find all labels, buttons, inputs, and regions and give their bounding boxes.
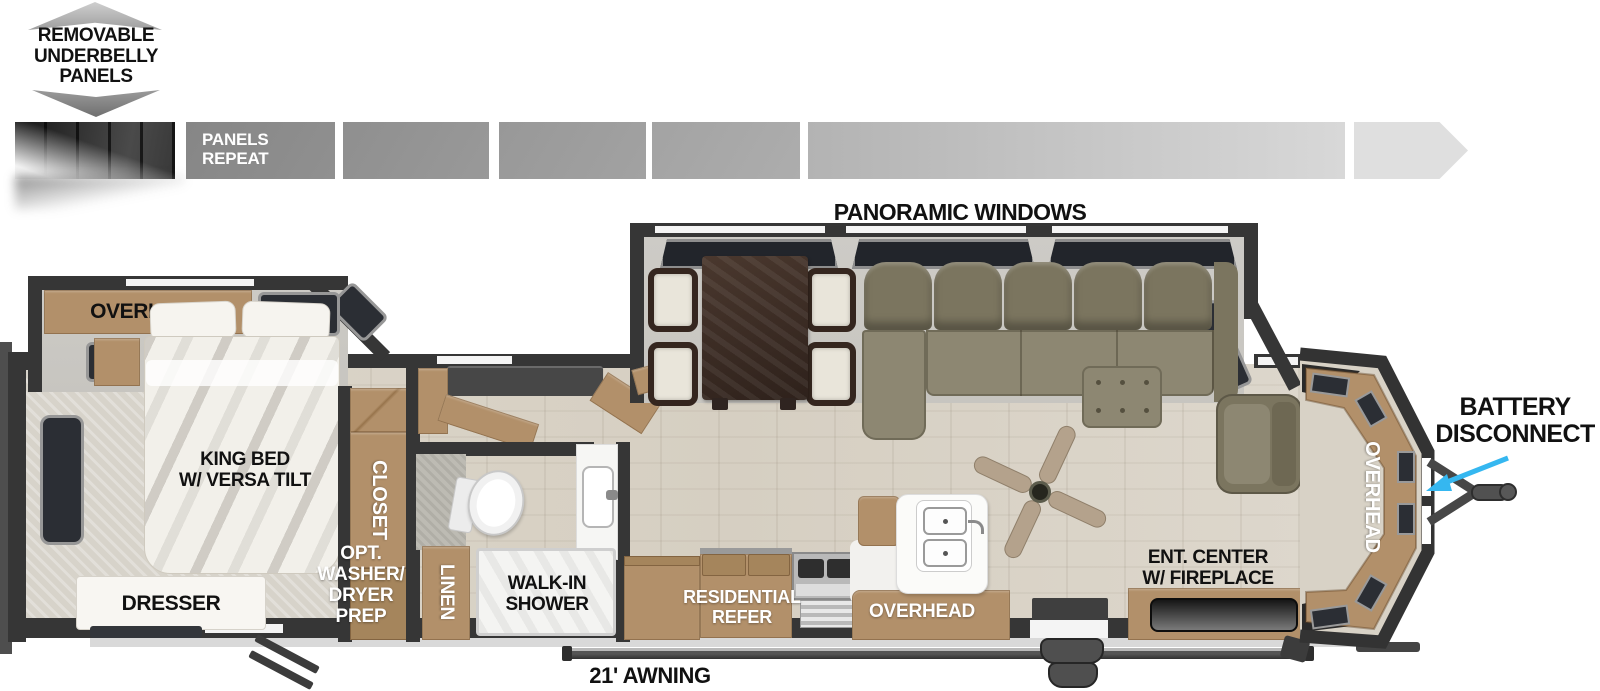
sofa-back-cushion [1074, 262, 1142, 330]
refrigerator-door [748, 554, 790, 576]
panels-repeat-line: REPEAT [202, 150, 269, 169]
battery-disconnect-label: BATTERY DISCONNECT [1432, 394, 1598, 448]
closet-label: CLOSET [368, 445, 390, 555]
refer-label-line: RESIDENTIAL [676, 588, 808, 608]
front-overhead-label: OVERHEAD [1361, 432, 1383, 562]
underbelly-note-line: UNDERBELLY [8, 47, 184, 68]
washer-dryer-label: OPT. WASHER/ DRYER PREP [296, 544, 426, 628]
panels-repeat-line: PANELS [202, 131, 269, 150]
awning-bar [566, 648, 1308, 659]
washer-label-line: DRYER [296, 586, 426, 607]
kitchen-overhead-label: OVERHEAD [852, 602, 992, 623]
refer-label-line: REFER [676, 608, 808, 628]
shower-label-line: WALK-IN [478, 574, 616, 595]
panel-strip-arrow-icon [1354, 122, 1468, 179]
sofa-back-cushion [934, 262, 1002, 330]
panoramic-window [1048, 239, 1237, 269]
dresser-tv [90, 626, 202, 638]
bedroom-bench [94, 338, 140, 386]
bedroom-rear-window [40, 415, 84, 545]
king-bed-label-line: KING BED [150, 450, 340, 471]
sofa-back-cushion [1144, 262, 1212, 330]
battery-label-line: BATTERY [1432, 394, 1598, 421]
island-side-cabinet [858, 496, 900, 546]
king-bed-label: KING BED W/ VERSA TILT [150, 450, 340, 491]
window-band-top [437, 356, 512, 364]
dinette-table-foot [780, 398, 796, 410]
panel-strip-repeat-segment: PANELS REPEAT [186, 122, 335, 179]
sofa-right-arm [1214, 262, 1238, 402]
underbelly-note-line: REMOVABLE [8, 26, 184, 47]
washer-label-line: OPT. [296, 544, 426, 565]
sofa-chaise [862, 330, 926, 440]
panel-strip-dark-segment [15, 122, 175, 179]
panel-strip-shadow [15, 176, 185, 210]
bath-faucet-icon [606, 490, 618, 500]
shower-label: WALK-IN SHOWER [478, 574, 616, 615]
washer-label-line: WASHER/ [296, 565, 426, 586]
living-slideout-window-band [655, 226, 825, 233]
dinette-chair [806, 268, 856, 332]
ent-center-label: ENT. CENTER W/ FIREPLACE [1110, 548, 1306, 589]
dinette-table-foot [712, 398, 728, 410]
underbelly-note-line: PANELS [8, 67, 184, 88]
shower-label-line: SHOWER [478, 595, 616, 616]
ottoman-button-icon [1096, 408, 1101, 413]
fan-hub [1029, 481, 1051, 503]
refer-label: RESIDENTIAL REFER [676, 588, 808, 628]
sink-drain-icon [943, 519, 948, 524]
dinette-table [702, 256, 808, 400]
sofa-back-cushion [864, 262, 932, 330]
awning-end-cap [562, 646, 572, 661]
entry-step [1048, 662, 1098, 688]
panoramic-windows-label: PANORAMIC WINDOWS [820, 200, 1100, 225]
refrigerator-door [702, 554, 746, 576]
dinette-chair [806, 342, 856, 406]
wall-rear-left [8, 352, 26, 642]
living-slideout-window-band [846, 226, 1026, 233]
kitchen-corner-pantry-lid [624, 556, 700, 566]
sofa-seat-row [926, 330, 1214, 396]
rear-stabilizer-icon [248, 650, 314, 690]
battery-disconnect-arrow-icon [1416, 450, 1526, 500]
battery-label-line: DISCONNECT [1432, 421, 1598, 448]
entry-step [1040, 638, 1104, 664]
panel-strip-segment [652, 122, 800, 179]
ottoman-button-icon [1096, 380, 1101, 385]
living-slideout-window-band [1052, 226, 1228, 233]
closet-upper-wardrobe [350, 388, 408, 432]
panel-strip-segment [808, 122, 1345, 179]
dresser: DRESSER [76, 576, 266, 630]
dinette-chair [648, 342, 698, 406]
dresser-label: DRESSER [77, 577, 265, 629]
ottoman [1082, 366, 1162, 428]
sofa-back-cushion [1004, 262, 1072, 330]
ottoman-button-icon [1144, 408, 1149, 413]
hall-counter [447, 366, 603, 396]
panel-strip-segment [343, 122, 489, 179]
underbelly-arrow-down-icon [32, 90, 160, 117]
king-bed-label-line: W/ VERSA TILT [150, 471, 340, 492]
stove-grate-icon [798, 559, 824, 578]
bedroom-slideout-wall-left [28, 276, 42, 392]
ottoman-button-icon [1120, 408, 1125, 413]
panel-fade [15, 122, 175, 179]
ottoman-button-icon [1120, 380, 1125, 385]
linen-label: LINEN [436, 555, 456, 629]
underbelly-note: REMOVABLE UNDERBELLY PANELS [8, 26, 184, 88]
kitchen-sink [916, 500, 972, 572]
floorplan-canvas: REMOVABLE UNDERBELLY PANELS PANELS REPEA… [0, 0, 1600, 691]
awning-label: 21' AWNING [560, 664, 740, 688]
ent-center-label-line: ENT. CENTER [1110, 548, 1306, 569]
bedroom-slideout-window-band [126, 279, 254, 286]
washer-label-line: PREP [296, 607, 426, 628]
ottoman-button-icon [1144, 380, 1149, 385]
dishwasher [800, 600, 858, 628]
bed-fold [146, 360, 338, 386]
entry-door-threshold [1030, 620, 1108, 638]
sink-drain-icon [943, 551, 948, 556]
ent-center-label-line: W/ FIREPLACE [1110, 569, 1306, 590]
dinette-chair [648, 268, 698, 332]
panel-strip-segment [499, 122, 646, 179]
